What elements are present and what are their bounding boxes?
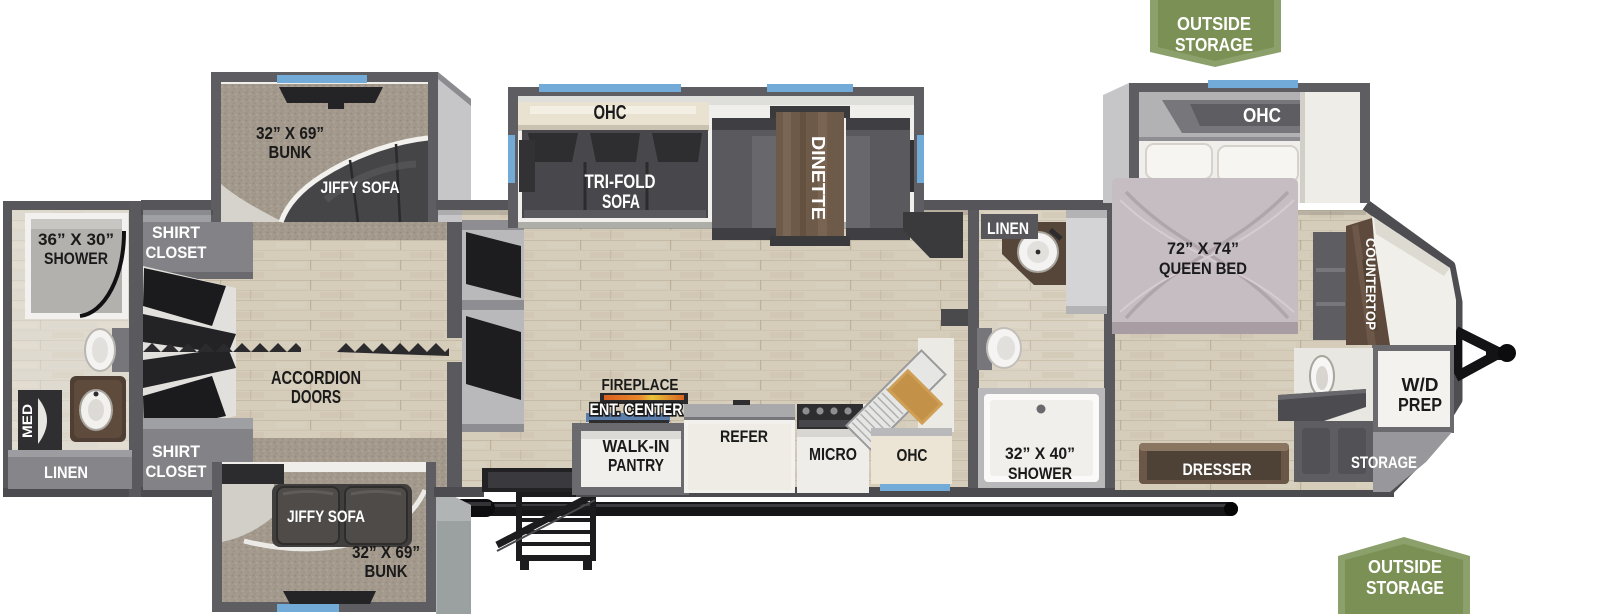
svg-text:LINEN: LINEN [987, 220, 1029, 238]
svg-text:SHOWER: SHOWER [44, 249, 108, 268]
svg-text:TRI-FOLD: TRI-FOLD [585, 172, 656, 193]
svg-text:JIFFY SOFA: JIFFY SOFA [321, 178, 400, 197]
svg-text:BUNK: BUNK [365, 561, 408, 581]
svg-text:72” X 74”: 72” X 74” [1167, 239, 1239, 258]
svg-text:LINEN: LINEN [44, 464, 88, 482]
svg-text:SHIRT: SHIRT [152, 442, 201, 461]
svg-text:JIFFY SOFA: JIFFY SOFA [287, 507, 365, 526]
svg-text:ACCORDION: ACCORDION [271, 367, 361, 388]
svg-text:SOFA: SOFA [602, 192, 640, 213]
svg-text:PREP: PREP [1398, 395, 1442, 415]
svg-text:SHOWER: SHOWER [1008, 464, 1072, 483]
svg-text:SHIRT: SHIRT [152, 223, 201, 242]
svg-text:OHC: OHC [594, 102, 627, 124]
svg-text:CLOSET: CLOSET [146, 243, 208, 262]
svg-text:BUNK: BUNK [269, 142, 312, 162]
svg-text:36” X 30”: 36” X 30” [38, 230, 114, 249]
svg-text:W/D: W/D [1402, 375, 1439, 395]
svg-text:32” X 69”: 32” X 69” [256, 123, 324, 143]
svg-text:OUTSIDE: OUTSIDE [1177, 13, 1251, 34]
svg-text:FIREPLACE: FIREPLACE [602, 377, 679, 394]
svg-text:32” X 69”: 32” X 69” [352, 542, 420, 562]
svg-text:REFER: REFER [720, 427, 768, 446]
svg-text:ENT. CENTER: ENT. CENTER [590, 400, 683, 419]
svg-text:32” X 40”: 32” X 40” [1005, 444, 1075, 463]
svg-text:DINETTE: DINETTE [808, 136, 829, 220]
svg-text:PANTRY: PANTRY [608, 455, 664, 475]
svg-text:DRESSER: DRESSER [1183, 460, 1252, 479]
svg-text:OHC: OHC [1243, 105, 1281, 127]
svg-text:DOORS: DOORS [291, 386, 341, 407]
svg-text:MICRO: MICRO [809, 444, 857, 464]
svg-text:STORAGE: STORAGE [1351, 453, 1417, 472]
svg-text:QUEEN BED: QUEEN BED [1159, 259, 1247, 278]
svg-text:OUTSIDE: OUTSIDE [1368, 556, 1442, 577]
svg-text:STORAGE: STORAGE [1366, 577, 1444, 598]
svg-text:WALK-IN: WALK-IN [603, 436, 670, 456]
svg-text:STORAGE: STORAGE [1175, 34, 1253, 55]
svg-text:MED: MED [20, 404, 35, 438]
svg-text:OHC: OHC [897, 445, 928, 465]
svg-text:CLOSET: CLOSET [146, 462, 208, 481]
